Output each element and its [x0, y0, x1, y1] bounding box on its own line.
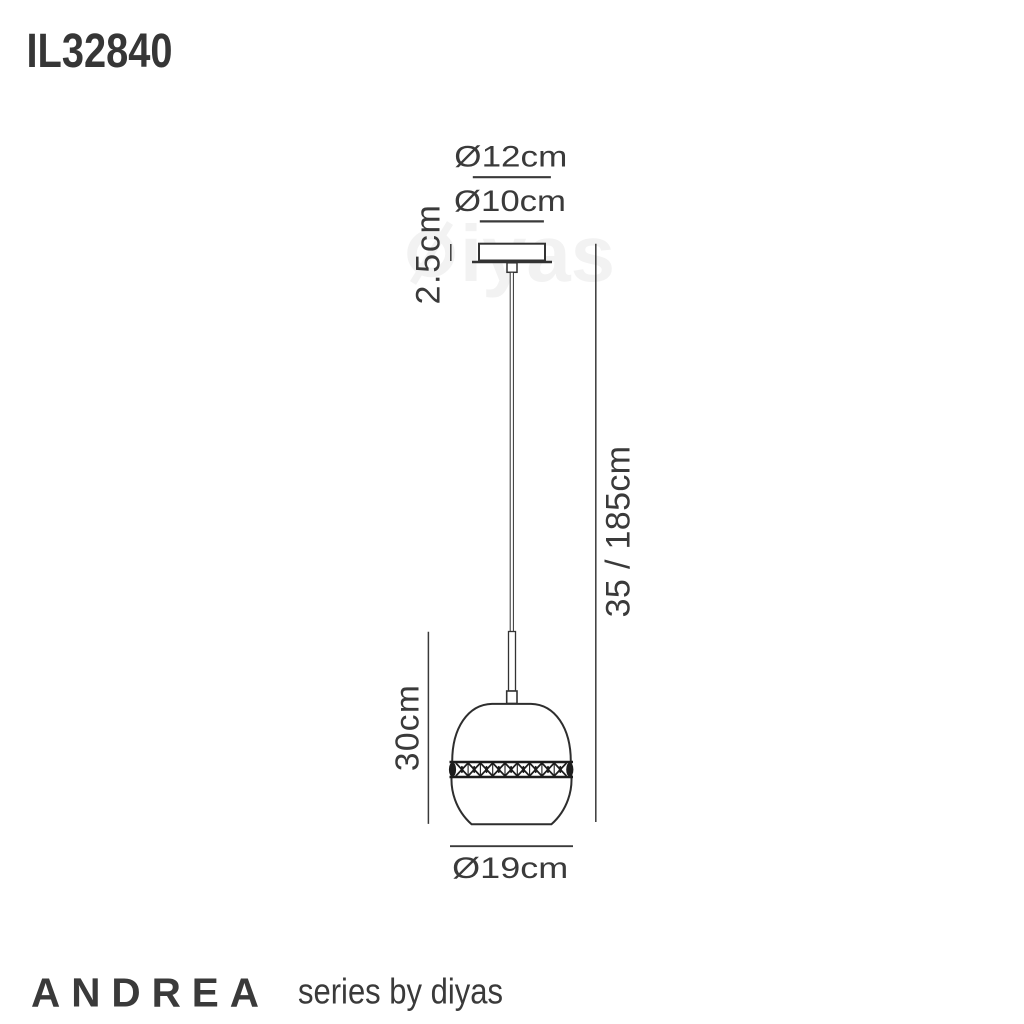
svg-text:IL32840: IL32840 — [27, 24, 173, 78]
svg-text:series by diyas: series by diyas — [298, 971, 503, 1012]
svg-text:Ø10cm: Ø10cm — [454, 185, 566, 218]
svg-text:35 / 185cm: 35 / 185cm — [600, 446, 638, 618]
svg-text:Ø12cm: Ø12cm — [454, 140, 567, 173]
svg-text:30cm: 30cm — [390, 684, 427, 771]
svg-text:Ø19cm: Ø19cm — [452, 852, 568, 885]
svg-text:2.5cm: 2.5cm — [410, 203, 448, 304]
